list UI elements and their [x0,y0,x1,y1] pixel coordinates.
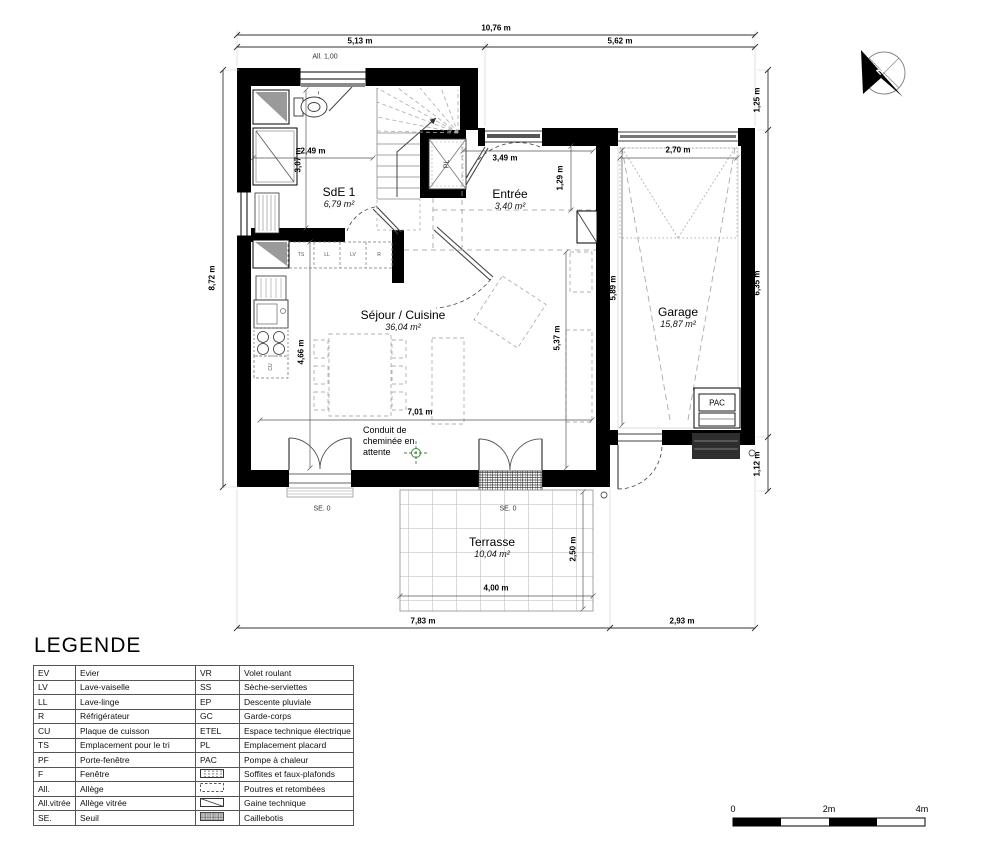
seuil-label-left: SE. 0 [313,506,330,513]
sejour-furniture [314,252,592,424]
hob-plaque-cuisson [254,328,288,356]
dim-top-total: 10,76 m [481,24,510,33]
dim-garage-height: 5,89 m [609,276,618,301]
legend: LEGENDE EV Evier VR Volet roulant LV Lav… [33,634,353,826]
french-door-right-swing [479,439,542,470]
pac-unit [694,388,740,428]
cu-label: CU [268,363,274,370]
window-left-sde [237,192,251,236]
sde-fixtures [253,90,327,233]
legend-icon-cell [196,796,240,811]
legend-desc: Allège vitrée [76,796,196,811]
legend-abbr: PL [196,738,240,753]
scalebar-four: 4m [916,804,929,814]
shutter-box-top [253,90,289,124]
legend-desc: Allège [76,782,196,797]
legend-desc: Volet roulant [240,666,354,681]
gaine-technique-shaft [577,211,597,243]
pac-label: PAC [709,399,725,408]
legend-desc: Pompe à chaleur [240,753,354,768]
legend-desc: Réfrigérateur [76,709,196,724]
legend-desc: Poutres et retombées [240,782,354,797]
sejour-door-leaf [434,227,493,308]
chair [314,366,328,384]
garage-elements [618,148,740,459]
legend-desc: Seuil [76,811,196,826]
legend-abbr: All.vitrée [34,796,76,811]
legend-desc: Descente pluviale [240,695,354,710]
counter-unit-ts: TS [298,252,304,258]
chair [392,340,406,358]
room-area: 15,87 m² [658,319,698,329]
soffites-pattern-icon [199,768,225,779]
legend-row: CU Plaque de cuisson ETEL Espace techniq… [34,724,354,739]
garage-side-door-opening [618,430,662,445]
room-name: SdE 1 [323,185,356,199]
legend-row: SE. Seuil Caillebotis [34,811,354,826]
french-door-right-threshold [479,470,542,490]
legend-abbr: PAC [196,753,240,768]
dim-entree-width: 3,49 m [493,154,518,163]
kitchen-tall-unit [256,276,286,300]
sde-door-swing [347,206,401,234]
scalebar-zero: 0 [730,804,735,814]
legend-abbr: VR [196,666,240,681]
room-name: Séjour / Cuisine [361,308,446,322]
scalebar-two: 2m [823,804,836,814]
sink-evier [254,300,288,328]
chimney-note-line: Conduit de [363,425,415,436]
counter-unit-r: R [377,252,381,258]
legend-row: PF Porte-fenêtre PAC Pompe à chaleur [34,753,354,768]
room-name: Entrée [492,187,527,201]
room-label-sde: SdE 1 6,79 m² [323,185,356,209]
legend-desc: Plaque de cuisson [76,724,196,739]
dim-sejour-width: 7,01 m [408,408,433,417]
legend-icon-cell [196,782,240,797]
shutter-box-kitchen [253,240,289,268]
dim-bottom-left: 7,83 m [411,617,436,626]
chair [392,392,406,410]
legend-desc: Emplacement pour le tri [76,738,196,753]
room-area: 6,79 m² [323,199,356,209]
legend-abbr: LV [34,680,76,695]
dim-right-middle: 6,35 m [753,271,762,296]
chimney-note: Conduit de cheminée en attente [363,425,415,458]
side-furniture [570,252,592,292]
legend-desc: Gaine technique [240,796,354,811]
legend-desc: Sèche-serviettes [240,680,354,695]
sofa [566,330,592,422]
floor-plan-page: 10,76 m 5,13 m 5,62 m 8,72 m 1,25 m 6,35… [0,0,1000,857]
legend-desc: Fenêtre [76,767,196,782]
legend-row: LV Lave-vaiselle SS Sèche-serviettes [34,680,354,695]
legend-abbr: SS [196,680,240,695]
legend-desc: Lave-linge [76,695,196,710]
legend-desc: Soffites et faux-plafonds [240,767,354,782]
dim-terrasse-height: 2,50 m [569,537,578,562]
legend-abbr: ETEL [196,724,240,739]
legend-abbr: CU [34,724,76,739]
legend-abbr: PF [34,753,76,768]
legend-row: TS Emplacement pour le tri PL Emplacemen… [34,738,354,753]
dim-entree-height: 1,29 m [556,166,565,191]
dim-right-top: 1,25 m [753,88,762,113]
legend-abbr: EV [34,666,76,681]
garage-side-door-swing [618,445,662,489]
chair [392,366,406,384]
chair [314,340,328,358]
legend-desc: Porte-fenêtre [76,753,196,768]
legend-desc: Lave-vaiselle [76,680,196,695]
room-name: Garage [658,305,698,319]
dim-garage-width: 2,70 m [666,146,691,155]
room-label-terrasse: Terrasse 10,04 m² [469,535,515,559]
legend-desc: Evier [76,666,196,681]
soffite-outline [620,148,737,238]
legend-table: EV Evier VR Volet roulant LV Lave-vaisel… [33,665,354,826]
towel-radiator [255,193,279,233]
dim-sde-height: 3,07 m [294,148,303,173]
legend-icon-cell [196,767,240,782]
legend-abbr: F [34,767,76,782]
toilet [294,97,327,117]
scale-bar [733,818,925,826]
chair [314,392,328,410]
legend-abbr: TS [34,738,76,753]
entrance-door-swing [463,143,540,185]
legend-abbr: GC [196,709,240,724]
dining-table [329,334,391,416]
stair-fan [377,88,458,133]
dim-sde-width: 2,49 m [301,147,326,156]
room-area: 10,04 m² [469,549,515,559]
counter-unit-lv: LV [350,252,356,258]
window-top-allege [300,68,366,87]
room-area: 3,40 m² [492,201,527,211]
legend-row: All.vitrée Allège vitrée Gaine technique [34,796,354,811]
legend-desc: Espace technique électrique [240,724,354,739]
entrance-threshold [485,128,542,146]
dim-top-left: 5,13 m [348,37,373,46]
legend-abbr: EP [196,695,240,710]
gaine-pattern-icon [199,797,225,808]
shower [253,128,297,185]
legend-row: F Fenêtre Soffites et faux-plafonds [34,767,354,782]
chimney-note-line: attente [363,447,415,458]
dim-sejour-height2: 5,37 m [553,326,562,351]
seuil-label-right: SE. 0 [499,506,516,513]
legend-title: LEGENDE [34,634,353,658]
legend-row: All. Allège Poutres et retombées [34,782,354,797]
dim-sejour-height: 4,66 m [297,340,306,365]
caillebotis-grate [479,471,542,490]
french-door-left-swing [289,438,351,470]
rotated-armchair [474,276,546,348]
room-label-sejour: Séjour / Cuisine 36,04 m² [361,308,446,332]
legend-desc: Emplacement placard [240,738,354,753]
room-label-garage: Garage 15,87 m² [658,305,698,329]
dim-top-right: 5,62 m [608,37,633,46]
garage-door-opening [618,128,738,146]
legend-icon-cell [196,811,240,826]
room-name: Terrasse [469,535,515,549]
counter-unit-ll: LL [324,252,330,258]
pac-exterior-unit [692,433,740,459]
dim-right-bottom: 1,12 m [753,452,762,477]
chimney-note-line: cheminée en [363,436,415,447]
legend-abbr: R [34,709,76,724]
dim-left-total: 8,72 m [208,266,217,291]
legend-abbr: LL [34,695,76,710]
legend-row: EV Evier VR Volet roulant [34,666,354,681]
kitchen-island [432,338,464,424]
legend-row: LL Lave-linge EP Descente pluviale [34,695,354,710]
dim-bottom-right: 2,93 m [670,617,695,626]
legend-abbr: SE. [34,811,76,826]
legend-desc: Caillebotis [240,811,354,826]
allege-window-label: All. 1,00 [312,54,337,61]
placard-label: PL [444,160,451,169]
room-area: 36,04 m² [361,322,446,332]
legend-desc: Garde-corps [240,709,354,724]
french-door-left-threshold [287,470,353,497]
dim-terrasse-width: 4,00 m [484,584,509,593]
legend-abbr: All. [34,782,76,797]
garage-door-swing-lines [622,148,735,420]
caillebotis-pattern-icon [199,811,225,822]
poutres-pattern-icon [199,782,225,793]
room-label-entree: Entrée 3,40 m² [492,187,527,211]
legend-row: R Réfrigérateur GC Garde-corps [34,709,354,724]
